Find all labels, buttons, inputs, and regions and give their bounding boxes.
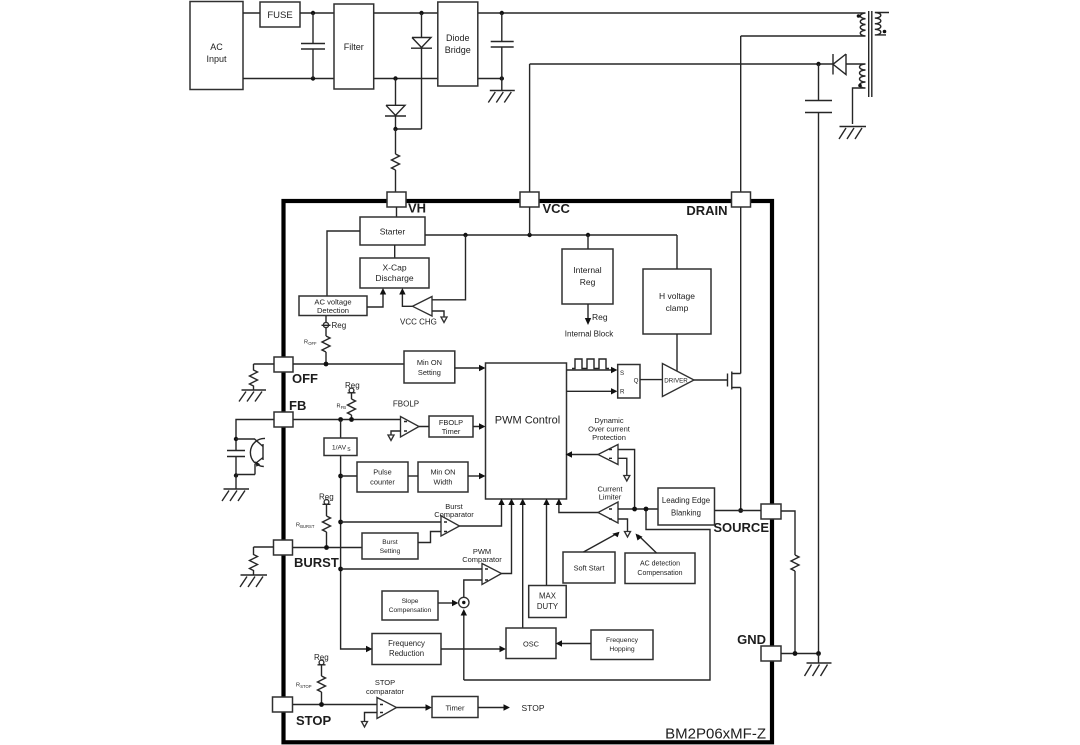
svg-text:VCC: VCC <box>543 201 571 216</box>
svg-text:Setting: Setting <box>380 548 401 555</box>
svg-text:Slope: Slope <box>402 598 419 605</box>
svg-text:Comparator: Comparator <box>462 555 502 564</box>
svg-text:clamp: clamp <box>666 303 689 313</box>
svg-text:Hopping: Hopping <box>609 646 635 653</box>
svg-text:SOURCE: SOURCE <box>713 520 769 535</box>
svg-text:Min ON: Min ON <box>430 468 455 477</box>
svg-text:Frequency: Frequency <box>606 637 639 644</box>
svg-text:Frequency: Frequency <box>388 639 425 648</box>
svg-text:Reg: Reg <box>319 493 334 502</box>
svg-text:Input: Input <box>206 54 227 64</box>
svg-text:STOP: STOP <box>375 678 395 687</box>
svg-text:Soft Start: Soft Start <box>574 564 605 573</box>
svg-text:Q: Q <box>634 377 639 384</box>
svg-text:Pulse: Pulse <box>373 468 392 477</box>
svg-text:AC detection: AC detection <box>640 561 680 568</box>
svg-text:PWM Control: PWM Control <box>495 415 560 427</box>
svg-text:MAX: MAX <box>539 592 557 601</box>
svg-text:FBOLP: FBOLP <box>439 418 463 427</box>
svg-text:Blanking: Blanking <box>671 509 701 518</box>
svg-text:S: S <box>620 370 624 377</box>
svg-text:DRAIN: DRAIN <box>686 203 727 218</box>
svg-text:Bridge: Bridge <box>445 45 471 55</box>
svg-text:H voltage: H voltage <box>659 291 695 301</box>
svg-text:Reg: Reg <box>580 277 596 287</box>
svg-text:Discharge: Discharge <box>375 273 414 283</box>
svg-text:1/AV: 1/AV <box>332 445 347 452</box>
svg-text:OFF: OFF <box>292 371 318 386</box>
svg-text:DRIVER: DRIVER <box>664 378 688 385</box>
svg-text:Reg: Reg <box>592 312 608 322</box>
svg-text:FB: FB <box>341 405 347 410</box>
svg-text:VCC CHG: VCC CHG <box>400 318 437 327</box>
svg-text:BM2P06xMF-Z: BM2P06xMF-Z <box>665 726 766 743</box>
svg-text:Compensation: Compensation <box>389 607 432 614</box>
svg-text:VH: VH <box>408 201 426 216</box>
svg-text:GND: GND <box>737 632 766 647</box>
svg-text:Reg: Reg <box>314 653 329 662</box>
svg-text:R: R <box>620 389 625 396</box>
svg-text:Comparator: Comparator <box>434 510 474 519</box>
svg-text:OSC: OSC <box>523 640 540 649</box>
svg-text:STOP: STOP <box>300 684 312 689</box>
svg-text:counter: counter <box>370 478 395 487</box>
svg-text:Timer: Timer <box>442 427 461 436</box>
svg-text:Reduction: Reduction <box>389 649 424 658</box>
svg-text:AC: AC <box>210 42 223 52</box>
svg-text:FB: FB <box>289 398 306 413</box>
svg-text:Leading Edge: Leading Edge <box>662 496 710 505</box>
svg-text:comparator: comparator <box>366 687 404 696</box>
svg-text:Limiter: Limiter <box>599 493 622 502</box>
svg-text:X-Cap: X-Cap <box>382 263 406 273</box>
svg-text:Min ON: Min ON <box>417 358 442 367</box>
svg-text:Burst: Burst <box>382 539 398 546</box>
svg-text:Diode: Diode <box>446 33 470 43</box>
svg-text:Timer: Timer <box>445 704 465 713</box>
svg-text:Reg: Reg <box>332 321 347 330</box>
svg-text:STOP: STOP <box>296 713 331 728</box>
svg-text:BURST: BURST <box>294 555 339 570</box>
svg-text:Filter: Filter <box>344 42 364 52</box>
svg-text:FBOLP: FBOLP <box>393 400 419 409</box>
svg-text:Setting: Setting <box>418 368 441 377</box>
svg-text:Compensation: Compensation <box>637 570 682 577</box>
svg-text:Internal: Internal <box>573 265 601 275</box>
svg-text:STOP: STOP <box>522 703 545 713</box>
svg-text:Detection: Detection <box>317 306 349 315</box>
svg-text:FUSE: FUSE <box>267 10 292 21</box>
svg-text:OFF: OFF <box>308 341 317 346</box>
svg-text:DUTY: DUTY <box>537 602 559 611</box>
svg-text:Internal Block: Internal Block <box>565 330 614 339</box>
svg-text:Width: Width <box>434 478 453 487</box>
svg-text:Protection: Protection <box>592 433 626 442</box>
svg-text:Reg: Reg <box>345 381 360 390</box>
svg-text:Starter: Starter <box>380 227 406 237</box>
svg-text:BURST: BURST <box>300 524 315 529</box>
